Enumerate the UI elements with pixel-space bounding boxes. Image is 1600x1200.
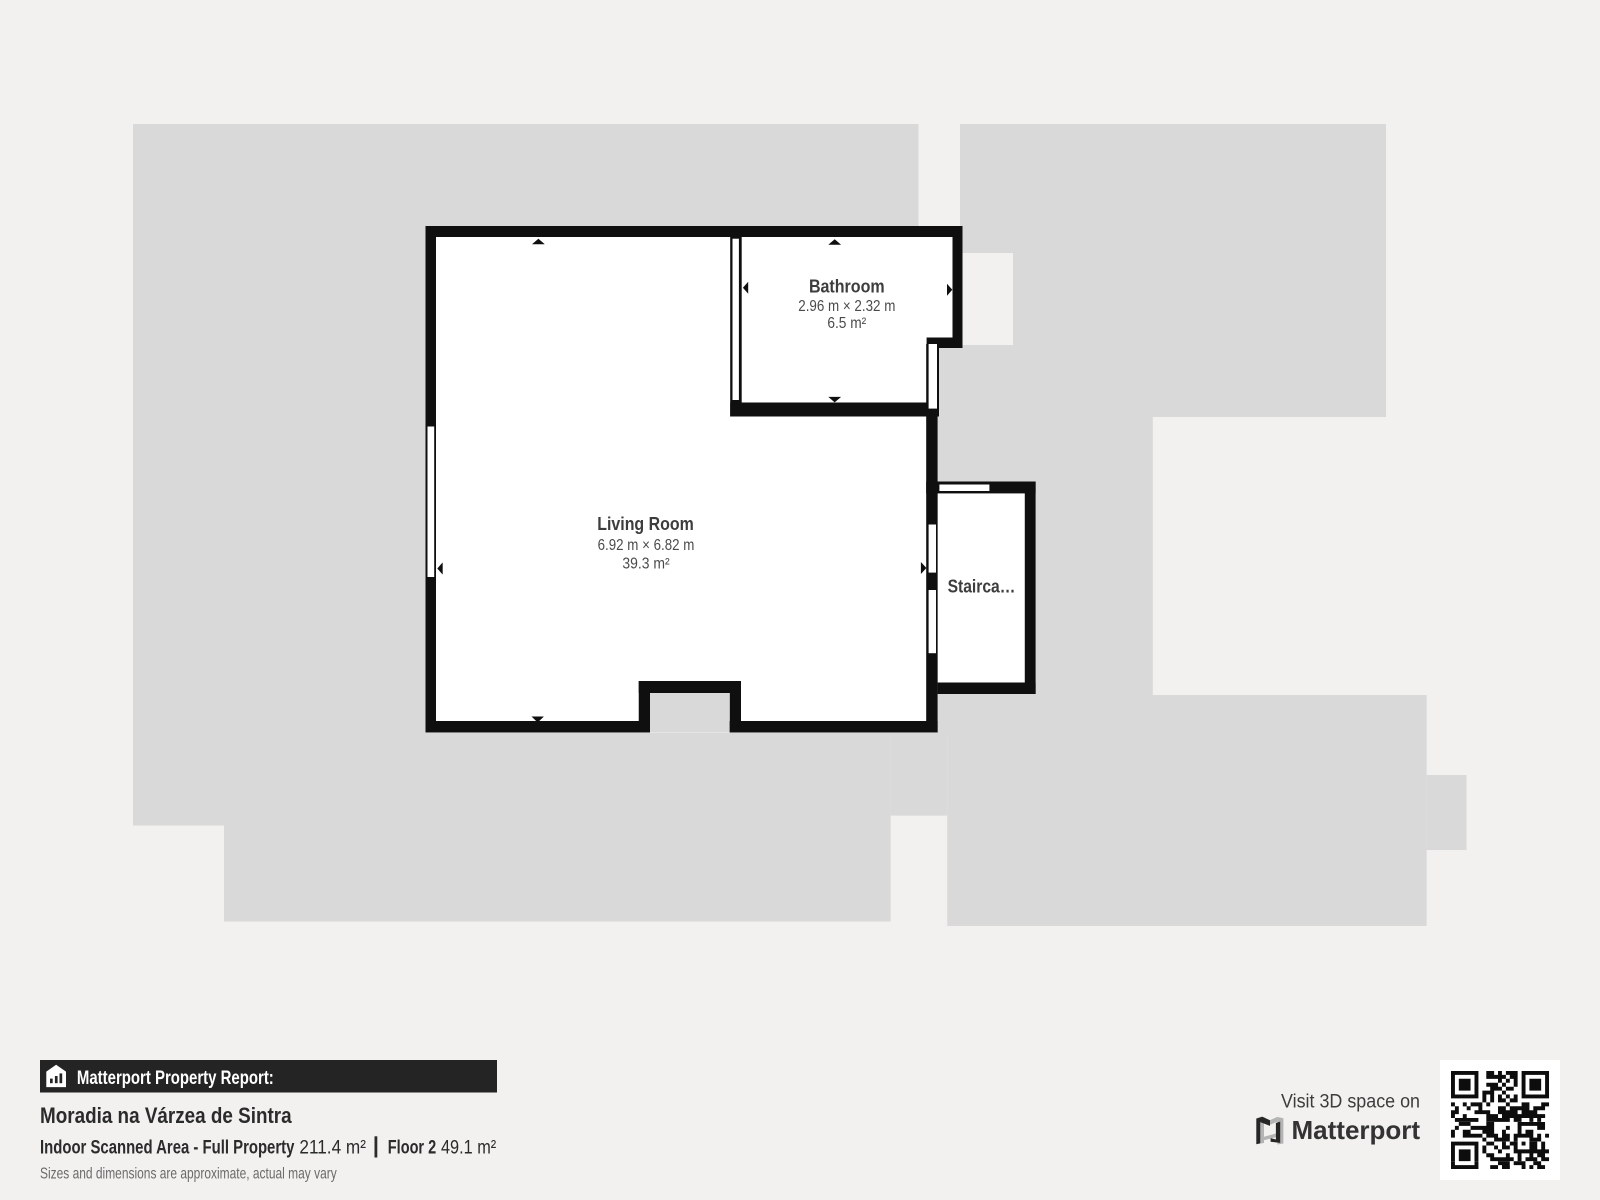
svg-text:Floor 2: Floor 2: [388, 1138, 436, 1159]
svg-text:Visit 3D space on: Visit 3D space on: [1281, 1091, 1420, 1112]
svg-text:2.96 m × 2.32 m: 2.96 m × 2.32 m: [798, 298, 895, 315]
svg-text:Matterport: Matterport: [1292, 1115, 1421, 1145]
svg-text:Matterport Property Report:: Matterport Property Report:: [77, 1068, 274, 1089]
svg-text:Living Room: Living Room: [597, 514, 694, 534]
svg-text:Bathroom: Bathroom: [809, 276, 885, 296]
svg-text:6.92 m × 6.82 m: 6.92 m × 6.82 m: [598, 537, 695, 554]
svg-text:Indoor Scanned Area - Full Pro: Indoor Scanned Area - Full Property: [40, 1138, 295, 1159]
svg-text:Sizes and dimensions are appro: Sizes and dimensions are approximate, ac…: [40, 1166, 337, 1183]
svg-text:Stairca…: Stairca…: [948, 577, 1016, 597]
svg-text:49.1 m²: 49.1 m²: [441, 1138, 496, 1159]
svg-text:Moradia na Várzea de Sintra: Moradia na Várzea de Sintra: [40, 1103, 292, 1128]
svg-text:211.4 m²: 211.4 m²: [299, 1138, 366, 1159]
svg-text:39.3 m²: 39.3 m²: [622, 556, 669, 573]
svg-text:6.5 m²: 6.5 m²: [827, 315, 866, 332]
